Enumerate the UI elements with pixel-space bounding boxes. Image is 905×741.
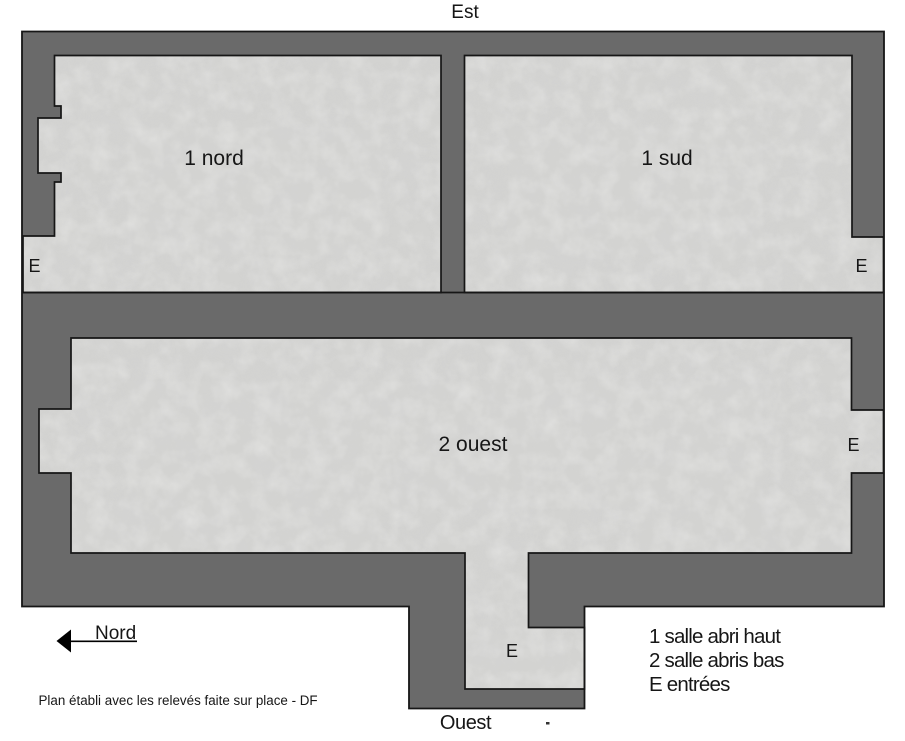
svg-text:Ouest: Ouest <box>440 712 492 734</box>
svg-text:Est: Est <box>451 2 479 23</box>
svg-text:E: E <box>28 256 40 276</box>
svg-text:Plan établi avec les relevés f: Plan établi avec les relevés faite sur p… <box>39 693 318 708</box>
svg-text:E: E <box>847 435 859 455</box>
svg-text:E: E <box>855 256 867 276</box>
svg-text:1 sud: 1 sud <box>641 147 692 170</box>
svg-text:E entrées: E entrées <box>649 673 730 696</box>
svg-text:2 ouest: 2 ouest <box>439 433 508 456</box>
svg-text:Nord: Nord <box>95 623 136 644</box>
svg-text:2 salle abris bas: 2 salle abris bas <box>649 649 784 672</box>
svg-text:1 salle abri haut: 1 salle abri haut <box>649 625 781 648</box>
svg-text:E: E <box>506 641 518 661</box>
svg-text:1 nord: 1 nord <box>184 147 244 170</box>
